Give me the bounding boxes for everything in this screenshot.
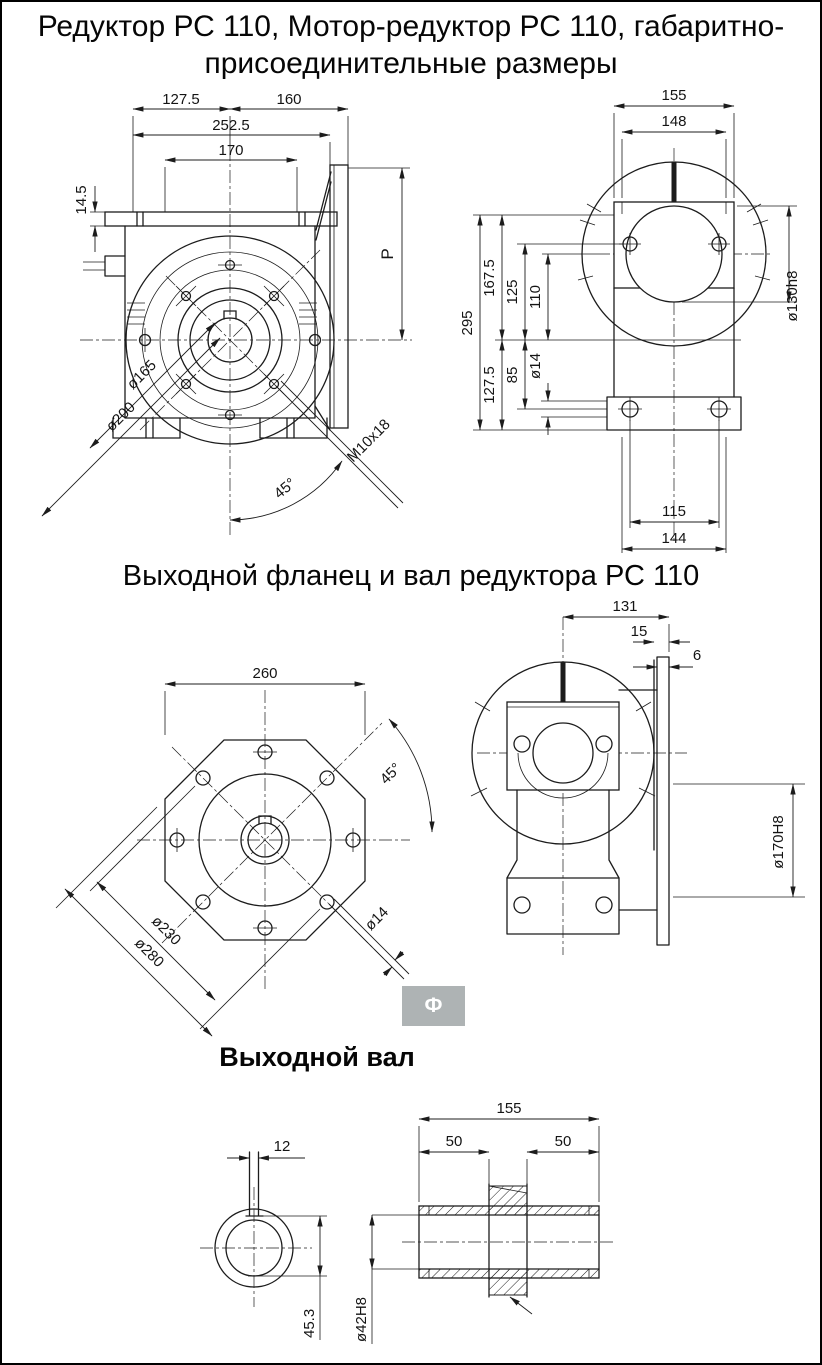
dim-front-160: 160	[276, 91, 301, 108]
flange-view-centerlines	[137, 690, 410, 992]
dim-side-110: 110	[527, 285, 544, 309]
dim-front-d165: ø165	[124, 357, 160, 393]
page-title-line2: присоединительные размеры	[2, 45, 820, 82]
dim-shaft-50-right: 50	[555, 1133, 572, 1150]
dim-side-127-5: 127.5	[481, 366, 498, 404]
dim-flange-d230: ø230	[148, 913, 184, 949]
dim-shaft-d42: ø42H8	[353, 1297, 370, 1342]
shaft-section-title: Выходной вал	[2, 1042, 632, 1073]
page-title: Редуктор РС 110, Мотор-редуктор РС 110, …	[2, 8, 820, 82]
dim-fside-131: 131	[612, 598, 637, 615]
dim-side-167-5: 167.5	[481, 259, 498, 297]
dim-flange-d14: ø14	[362, 904, 392, 934]
dim-front-170: 170	[218, 142, 243, 159]
dim-side-144: 144	[661, 530, 686, 547]
phi-badge-label: Ф	[425, 994, 443, 1018]
dim-shaft-45-3: 45.3	[301, 1309, 318, 1338]
side-view-drawing: 155 148 295 167.5 125 110 127.5 85 ø14 ø…	[457, 88, 817, 558]
dim-side-148: 148	[661, 113, 686, 130]
dim-shaft-155: 155	[496, 1100, 521, 1117]
output-shaft-drawing: 12 45.3 ø42H8 155 50 50	[142, 1092, 702, 1347]
front-view-drawing: 127.5 160 252.5 170 14.5 P ø165 ø200 M10…	[20, 88, 450, 550]
front-view-housing-outline	[83, 165, 348, 438]
phi-badge: Ф	[402, 986, 465, 1026]
side-view-dimensions: 155 148 295 167.5 125 110 127.5 85 ø14 ø…	[459, 87, 801, 553]
front-view-centerlines	[80, 148, 412, 536]
dim-shaft-50-left: 50	[446, 1133, 463, 1150]
drawing-page: { "header": { "title_line1": "Редуктор Р…	[0, 0, 822, 1365]
shaft-end-dimensions: 12 45.3 ø42H8	[227, 1138, 419, 1344]
dim-front-thread: M10x18	[344, 416, 394, 466]
dim-fside-d170: ø170H8	[770, 815, 787, 868]
dim-side-115: 115	[662, 503, 686, 520]
dim-front-angle: 45°	[271, 475, 299, 503]
dim-side-d14: ø14	[527, 353, 544, 379]
flange-section-title: Выходной фланец и вал редуктора РС 110	[2, 560, 820, 593]
flange-side-view-drawing: 131 15 6 ø170H8	[457, 600, 822, 1002]
dim-shaft-12: 12	[274, 1138, 291, 1155]
dim-flange-260: 260	[252, 665, 277, 682]
dim-front-127-5: 127.5	[162, 91, 200, 108]
dim-side-85: 85	[504, 367, 521, 384]
flange-view-drawing: 260 45° ø230 ø280 ø14	[42, 642, 462, 1050]
shaft-end-view	[200, 1152, 312, 1307]
dim-fside-15: 15	[631, 623, 648, 640]
dim-front-252-5: 252.5	[212, 117, 250, 134]
flange-side-outline	[471, 657, 669, 945]
dim-side-295: 295	[459, 310, 476, 335]
front-view-dimensions: 127.5 160 252.5 170 14.5 P ø165 ø200 M10…	[42, 91, 410, 520]
page-title-line1: Редуктор РС 110, Мотор-редуктор РС 110, …	[2, 8, 820, 45]
dim-flange-d280: ø280	[131, 935, 167, 971]
dim-flange-angle: 45°	[377, 760, 405, 788]
dim-front-14-5: 14.5	[73, 185, 90, 214]
dim-side-125: 125	[504, 279, 521, 304]
dim-side-155: 155	[661, 87, 686, 104]
dim-front-P: P	[378, 248, 397, 259]
shaft-section-view	[402, 1184, 614, 1314]
dim-side-d130: ø130h8	[784, 271, 801, 322]
dim-fside-6: 6	[693, 647, 701, 664]
